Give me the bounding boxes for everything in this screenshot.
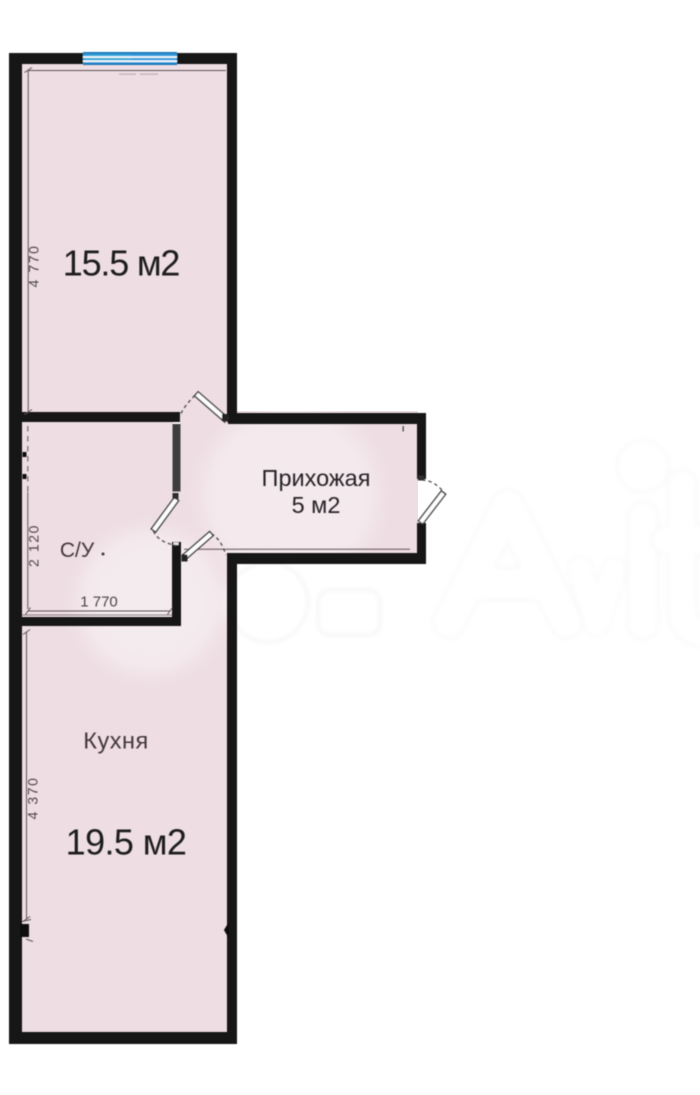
svg-text:2 120: 2 120 — [26, 524, 42, 567]
svg-text:1 770: 1 770 — [80, 594, 118, 611]
svg-text:19.5 м2: 19.5 м2 — [66, 822, 187, 863]
svg-text:4 770: 4 770 — [26, 244, 42, 287]
svg-text:4 370: 4 370 — [25, 776, 41, 819]
svg-text:Кухня: Кухня — [83, 728, 148, 754]
svg-text:С/У: С/У — [60, 539, 95, 562]
svg-text:5 м2: 5 м2 — [292, 492, 341, 518]
svg-text:15.5 м2: 15.5 м2 — [63, 243, 180, 284]
svg-text:Прихожая: Прихожая — [262, 465, 371, 491]
